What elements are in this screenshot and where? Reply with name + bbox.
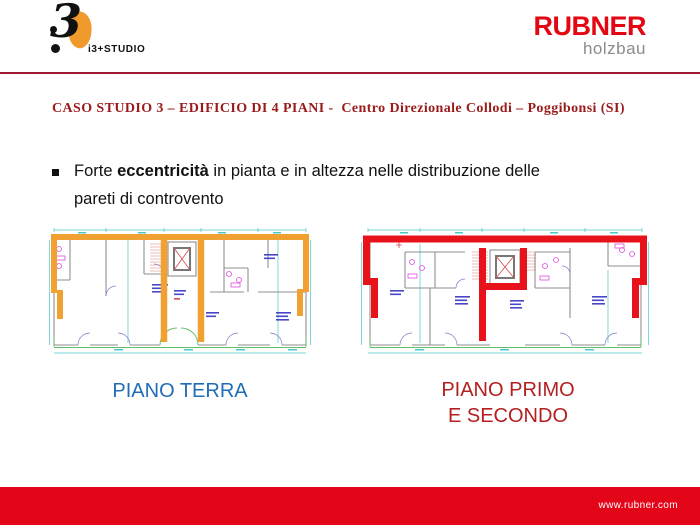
bullet-marker	[52, 169, 59, 176]
label-line2: E SECONDO	[448, 405, 568, 427]
bullet-text: Forte eccentricità in pianta e in altezz…	[74, 158, 630, 213]
header-divider-line	[0, 72, 700, 74]
bullet-line1-rest: in pianta e in altezza nelle distribuzio…	[209, 162, 540, 180]
room-labels-group	[152, 254, 291, 321]
slide-title: CASO STUDIO 3 – EDIFICIO DI 4 PIANI - Ce…	[52, 101, 692, 117]
label-piano-primo-secondo: PIANO PRIMOE SECONDO	[368, 377, 648, 429]
floor-plan-piano-primo-secondo	[360, 228, 650, 356]
rubner-sub-text: holzbau	[533, 40, 646, 58]
footer-url: www.rubner.com	[598, 500, 678, 511]
bullet-line2: pareti di controvento	[74, 190, 224, 208]
rubner-brand-text: RUBNER	[533, 12, 646, 40]
bullet-line1-prefix: Forte	[74, 162, 117, 180]
highlight-walls-orange	[51, 234, 309, 342]
rubner-logo: RUBNER holzbau	[533, 12, 646, 58]
presentation-slide: 3 i3+STUDIO RUBNER holzbau CASO STUDIO 3…	[0, 0, 700, 525]
stairwell	[150, 242, 196, 276]
logo-numeral: 3	[50, 0, 82, 44]
room-labels-group	[390, 290, 607, 309]
fixtures-group	[56, 247, 242, 288]
footer-bar: www.rubner.com	[0, 487, 700, 525]
i3-studio-logo: 3 i3+STUDIO	[24, 4, 174, 64]
dimension-lines-group	[362, 228, 649, 353]
studio-logo-text: i3+STUDIO	[88, 44, 145, 55]
entrance-group	[370, 338, 641, 348]
label-line1: PIANO PRIMO	[441, 379, 574, 401]
bullet-line1-bold: eccentricità	[117, 162, 209, 180]
logo-dot-icon	[51, 44, 60, 53]
logo-dot-icon	[50, 26, 57, 33]
label-piano-terra: PIANO TERRA	[48, 380, 312, 403]
floor-plan-piano-terra	[48, 228, 312, 356]
